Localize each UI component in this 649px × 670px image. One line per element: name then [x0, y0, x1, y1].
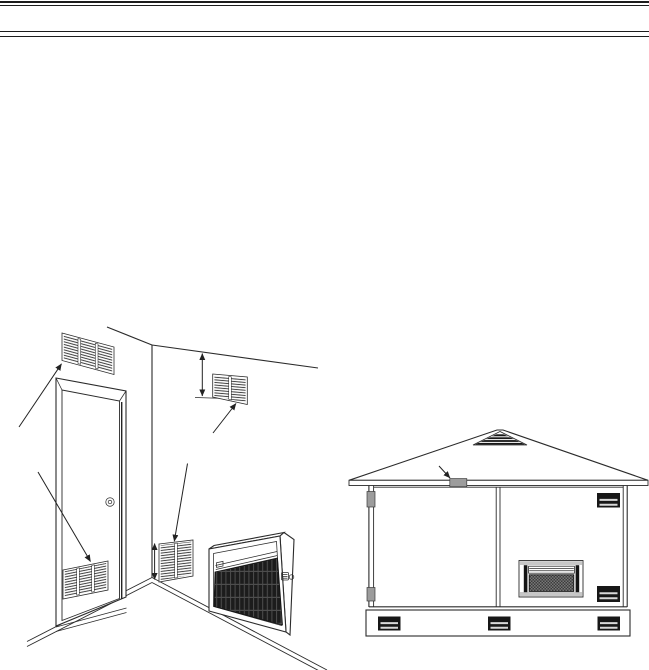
house-heater-top-band — [520, 561, 582, 565]
transom-vent-grille — [62, 333, 114, 375]
house-heater-louver-band — [529, 566, 575, 573]
leader-transom-vent — [19, 364, 62, 427]
ceiling-edge-right-wall — [152, 345, 318, 368]
leader-wall-vent-lower — [174, 464, 187, 542]
door-vent-mullion-2 — [92, 565, 95, 592]
house-heater-post-right — [576, 565, 580, 592]
house-heater-unit — [519, 561, 583, 598]
left-wall-vent-upper — [367, 492, 375, 508]
manual-page — [0, 0, 649, 670]
foundation-vent-right — [598, 617, 621, 631]
figures-canvas — [0, 0, 649, 670]
door — [56, 378, 127, 632]
house-heater-post-left — [524, 565, 528, 592]
house-heater-mesh-grille — [529, 575, 574, 592]
house-cross-section-figure — [349, 430, 648, 636]
wall-vent-lower — [155, 540, 193, 582]
room-corner-ventilation-figure — [19, 327, 327, 670]
transom-vent-mullion-1 — [78, 339, 81, 365]
right-wall-vent-upper — [597, 493, 620, 508]
wall-vent-upper — [195, 354, 247, 405]
house-heater-bottom-band — [520, 592, 582, 596]
callout-arrows — [19, 364, 236, 562]
eave-fascia-band — [349, 480, 648, 485]
roof — [349, 430, 648, 487]
wall-vent-lower-mullion — [175, 543, 178, 578]
left-wall-vent-lower — [367, 588, 375, 602]
leader-wall-vent-upper — [213, 404, 236, 434]
foundation-vent-center — [488, 617, 511, 631]
wall-vent-upper-mullion — [229, 377, 232, 400]
right-wall-vent-lower — [597, 586, 620, 602]
transom-vent-mullion-2 — [95, 343, 98, 369]
foundation-vent-left — [378, 617, 401, 631]
house-walls — [366, 486, 630, 637]
door-vent-mullion-1 — [77, 568, 80, 595]
ceiling-edge-left-wall — [107, 327, 152, 345]
ceiling-vent — [450, 479, 467, 487]
gable-vent-bar-4 — [470, 443, 530, 445]
